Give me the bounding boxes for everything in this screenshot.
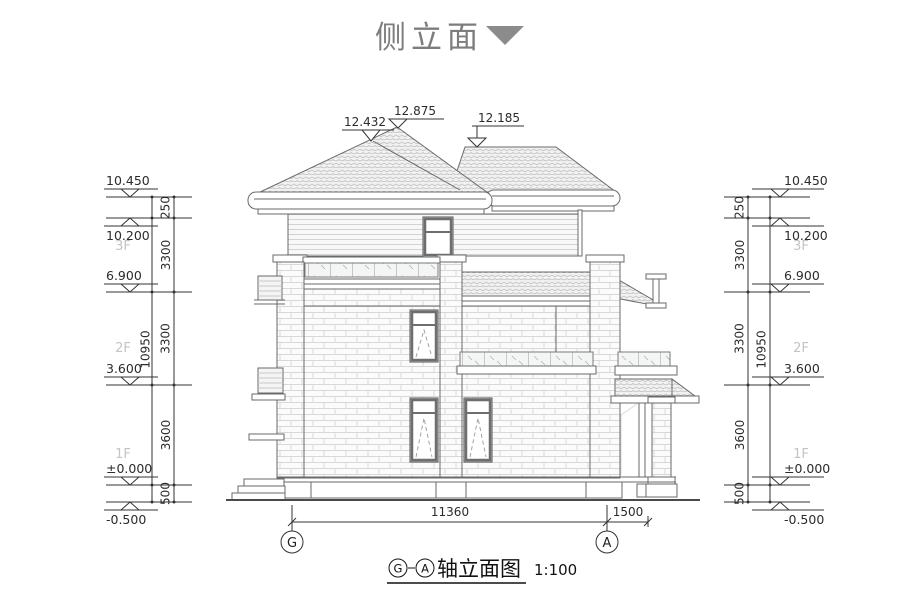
segment-dim: 3300	[159, 323, 173, 354]
segment-dim: 250	[159, 196, 173, 219]
axis-label: G	[287, 536, 297, 551]
overall-dim: 10950	[755, 330, 769, 368]
axis-label: A	[603, 536, 612, 551]
segment-dim: 3300	[733, 323, 747, 354]
level-label: 6.900	[784, 268, 820, 283]
segment-dim: 500	[159, 482, 173, 505]
porch-column-edge	[639, 403, 645, 477]
caption-axis-label: A	[421, 562, 429, 576]
roof-mark-label: 12.875	[394, 104, 436, 118]
caption-axis-label: G	[394, 562, 403, 576]
elevation-drawing: 侧立面	[0, 0, 910, 612]
window-3f	[423, 217, 453, 257]
span-dim: 11360	[431, 505, 469, 519]
segment-dim: 250	[733, 196, 747, 219]
base-and-ground	[226, 477, 700, 500]
level-label: 10.450	[106, 173, 150, 188]
page-title: 侧立面	[375, 20, 524, 56]
roof-mark: 12.875	[389, 104, 444, 128]
caption-text: 轴立面图	[437, 557, 521, 581]
floor-label: 2F	[115, 341, 131, 356]
roof-mark-label: 12.185	[478, 111, 520, 125]
pilaster-cap	[586, 255, 624, 262]
window-1f-right	[464, 398, 492, 462]
level-label: -0.500	[784, 512, 824, 527]
bottom-dimensions: 11360 1500 G A	[281, 505, 652, 553]
segment-dim: 3300	[733, 240, 747, 271]
roof-mark: 12.185	[468, 111, 524, 147]
segment-dim: 3600	[159, 420, 173, 451]
window-2f	[410, 310, 438, 362]
collapse-triangle-icon	[486, 26, 524, 45]
floor-label: 1F	[115, 447, 131, 462]
level-label: 3.600	[106, 361, 142, 376]
level-label: 3.600	[784, 361, 820, 376]
level-label: 6.900	[106, 268, 142, 283]
right-dimension-column: 10.450 10.200 6.900 3.600 ±0.000 -0.500 …	[724, 173, 830, 527]
page-title-text: 侧立面	[375, 20, 483, 56]
elevation-drawing-page: 侧立面	[0, 0, 910, 612]
extension-dim: 1500	[613, 505, 644, 519]
left-dimension-column: 10.450 10.200 6.900 3.600 ±0.000 -0.500 …	[104, 173, 192, 527]
level-label: ±0.000	[106, 461, 152, 476]
balcony-railing-2f-right	[457, 352, 596, 374]
segment-dims-right: 250 3300 3300 3600 500 10950	[733, 196, 769, 505]
drawing-caption: G A 轴立面图 1:100	[387, 557, 577, 583]
bay-roof-2f	[455, 272, 666, 308]
entry-steps	[232, 493, 285, 500]
porch	[611, 352, 699, 484]
level-label: ±0.000	[784, 461, 830, 476]
pilaster-cap	[437, 255, 466, 262]
level-label: -0.500	[106, 512, 146, 527]
segment-dim: 3300	[159, 240, 173, 271]
floor-label: 2F	[793, 341, 809, 356]
level-label: 10.450	[784, 173, 828, 188]
caption-scale: 1:100	[534, 561, 577, 579]
entry-steps	[244, 479, 284, 486]
floor-label: 1F	[793, 447, 809, 462]
overall-dim: 10950	[139, 330, 153, 368]
building-graphic	[226, 127, 700, 500]
balcony-railing-2f-top	[295, 257, 450, 306]
segment-dim: 500	[733, 482, 747, 505]
floor-label: 3F	[793, 239, 809, 254]
porch-column	[652, 403, 671, 477]
segment-dim: 3600	[733, 420, 747, 451]
pilaster-cap	[273, 255, 307, 262]
floor-label: 3F	[115, 239, 131, 254]
entry-steps	[238, 486, 285, 493]
window-1f-left	[410, 398, 438, 462]
roof-mark-label: 12.432	[344, 115, 386, 129]
